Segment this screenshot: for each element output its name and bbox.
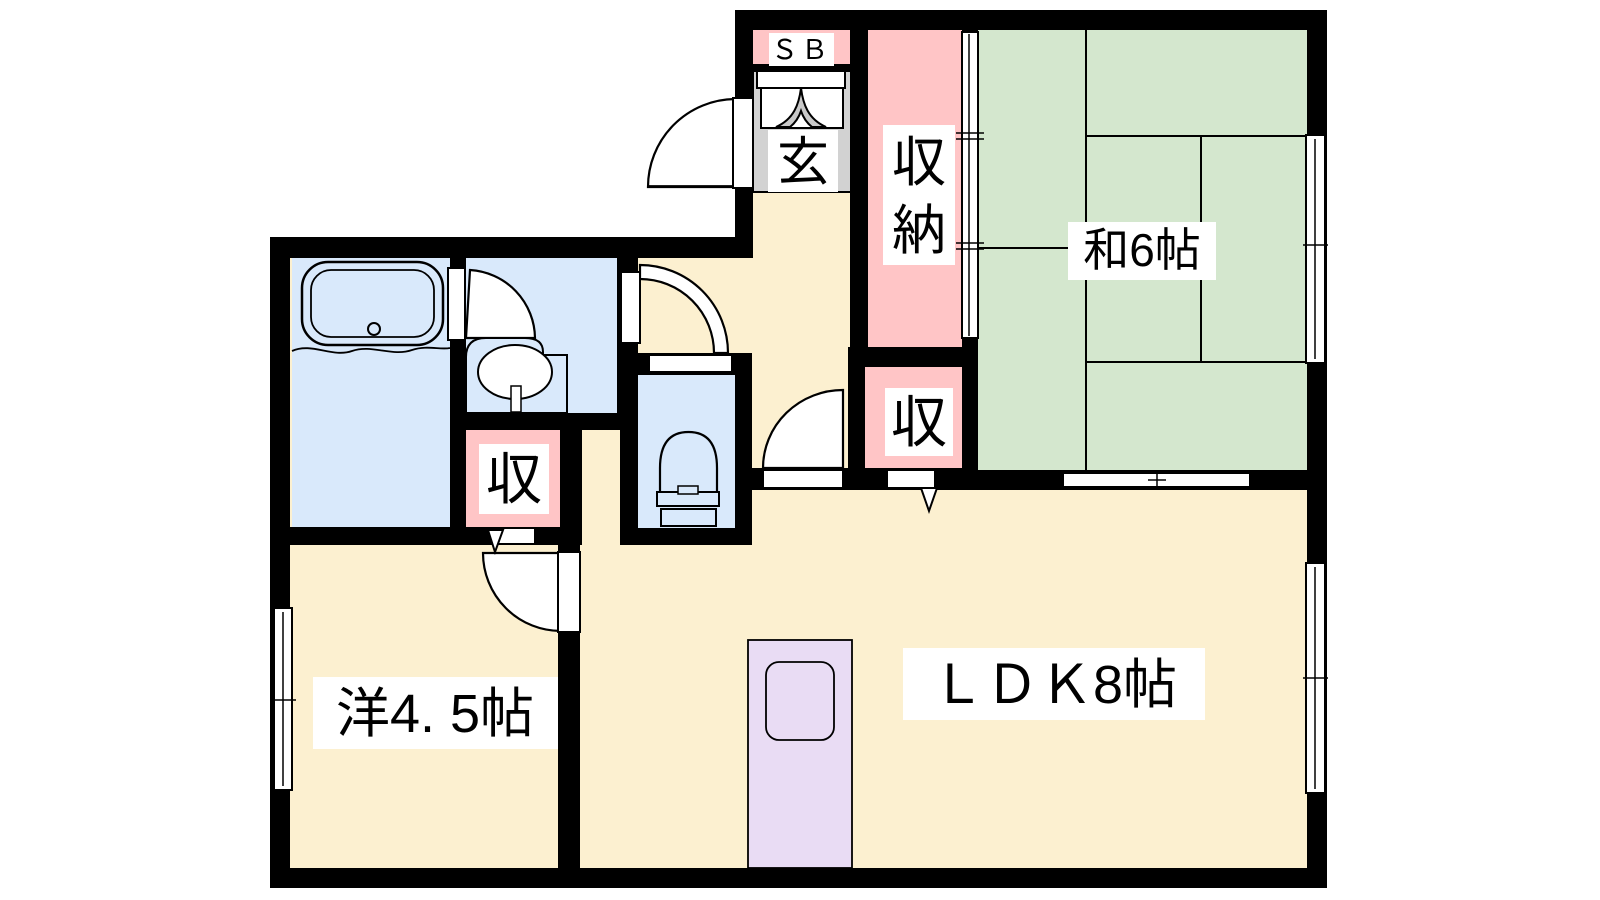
entrance-label: 玄 (777, 134, 829, 192)
wall (270, 237, 753, 258)
wall (620, 528, 752, 545)
wall (850, 10, 868, 367)
wall (450, 413, 638, 430)
western-room-doorway (558, 552, 580, 632)
closet-west-label: 収 (486, 448, 542, 511)
front-door-leaf (733, 98, 753, 188)
western-room-label: 洋4. 5帖 (336, 684, 534, 744)
bathroom-doorway (448, 268, 465, 340)
wall (270, 868, 1327, 888)
washbasin-tap-icon (511, 386, 521, 412)
closet-east-label: 収 (891, 391, 947, 454)
bathroom-floor (292, 258, 450, 527)
floor-plan-svg: 和6帖 ＬＤＫ8帖 洋4. 5帖 収 納 収 収 玄 ＳＢ (0, 0, 1600, 900)
wall (735, 10, 1327, 30)
front-door-arc (648, 99, 735, 187)
closet-tall-label-char1: 収 (892, 133, 946, 193)
japanese-room-label: 和6帖 (1083, 224, 1201, 276)
toilet-lid-notch (678, 486, 698, 494)
entrance-step-outer (757, 71, 845, 88)
floor-plan-page: 和6帖 ＬＤＫ8帖 洋4. 5帖 収 納 収 収 玄 ＳＢ (0, 0, 1600, 900)
fusuma-sliding-door (962, 32, 978, 338)
closet-tall-label-char2: 納 (892, 201, 946, 261)
wall (848, 347, 978, 367)
hall-ldk-doorway (763, 470, 843, 488)
shoe-box-label: ＳＢ (771, 35, 831, 65)
toilet-base-icon (661, 509, 716, 526)
toilet-doorway (649, 355, 732, 372)
closet-east-doorway (887, 470, 935, 488)
wall (560, 413, 582, 545)
kitchen-counter-icon (748, 640, 852, 868)
ldk-label: ＬＤＫ8帖 (931, 655, 1177, 715)
wall (735, 353, 752, 545)
washroom-doorway (621, 272, 640, 343)
